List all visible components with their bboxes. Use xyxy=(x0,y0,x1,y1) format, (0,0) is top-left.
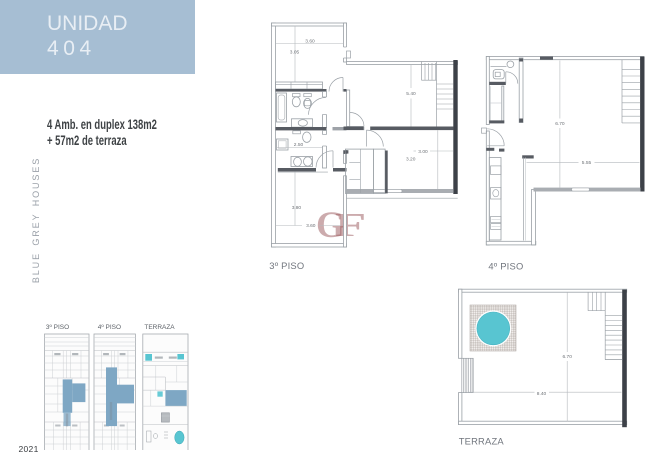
svg-text:5.40: 5.40 xyxy=(406,91,416,97)
svg-text:3.00: 3.00 xyxy=(418,149,428,155)
svg-text:3.60: 3.60 xyxy=(305,39,315,45)
svg-text:4º PISO: 4º PISO xyxy=(488,260,523,271)
svg-text:3º PISO: 3º PISO xyxy=(269,260,304,271)
svg-text:F: F xyxy=(335,206,366,244)
svg-text:3.05: 3.05 xyxy=(290,50,300,56)
svg-text:6.70: 6.70 xyxy=(555,121,565,127)
svg-text:5.55: 5.55 xyxy=(582,160,592,166)
svg-text:TERRAZA: TERRAZA xyxy=(459,436,505,447)
svg-text:6.70: 6.70 xyxy=(562,354,572,360)
svg-text:3.80: 3.80 xyxy=(292,205,302,211)
svg-text:8.40: 8.40 xyxy=(537,391,547,397)
svg-text:3.60: 3.60 xyxy=(306,223,316,229)
svg-text:2.50: 2.50 xyxy=(294,142,304,148)
svg-text:3.20: 3.20 xyxy=(406,157,416,163)
svg-text:4º PISO: 4º PISO xyxy=(98,324,121,331)
svg-text:3º PISO: 3º PISO xyxy=(46,324,69,331)
svg-text:TERRAZA: TERRAZA xyxy=(144,324,175,331)
